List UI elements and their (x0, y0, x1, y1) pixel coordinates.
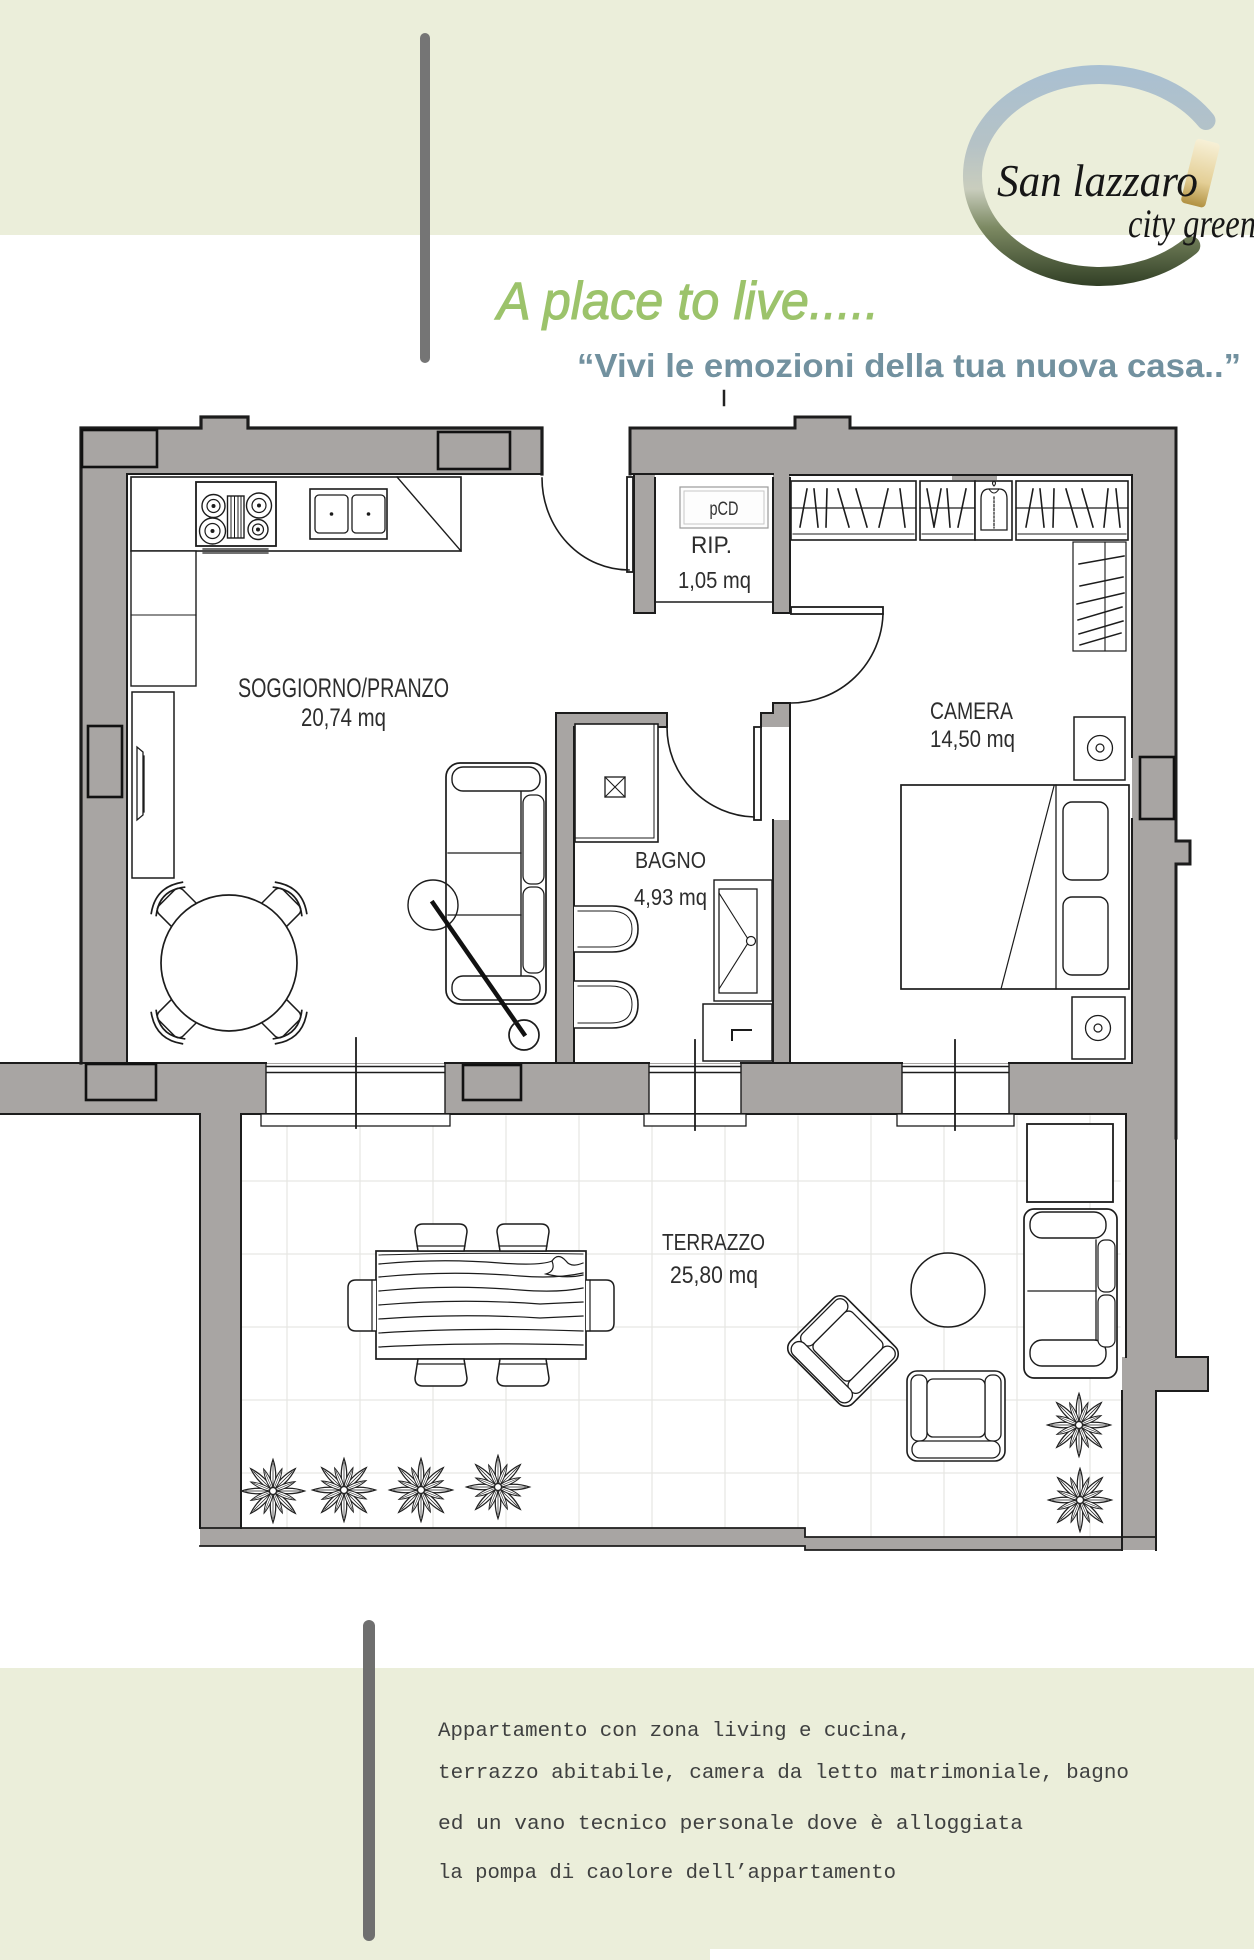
svg-text:SOGGIORNO/PRANZO: SOGGIORNO/PRANZO (238, 673, 449, 703)
svg-text:14,50 mq: 14,50 mq (930, 726, 1015, 753)
svg-text:pCD: pCD (710, 499, 739, 520)
svg-text:20,74 mq: 20,74 mq (301, 704, 386, 732)
svg-text:Appartamento con zona living e: Appartamento con zona living e cucina, (438, 1720, 911, 1743)
svg-text:ed un vano tecnico personale d: ed un vano tecnico personale dove è allo… (438, 1813, 1023, 1836)
svg-text:1,05 mq: 1,05 mq (678, 567, 751, 593)
svg-text:TERRAZZO: TERRAZZO (662, 1229, 765, 1255)
svg-text:A place to live.....: A place to live..... (494, 272, 879, 331)
svg-text:“Vivi le emozioni della tua nu: “Vivi le emozioni della tua nuova casa..… (577, 347, 1241, 384)
svg-text:4,93 mq: 4,93 mq (634, 884, 707, 910)
svg-text:San lazzaro: San lazzaro (997, 155, 1198, 206)
svg-text:terrazzo abitabile, camera da: terrazzo abitabile, camera da letto matr… (438, 1762, 1129, 1785)
svg-text:CAMERA: CAMERA (930, 698, 1013, 725)
svg-text:25,80 mq: 25,80 mq (670, 1262, 758, 1289)
svg-text:city green: city green (1128, 201, 1254, 246)
svg-text:RIP.: RIP. (691, 532, 732, 559)
svg-text:BAGNO: BAGNO (635, 847, 706, 873)
svg-text:la pompa di caolore dell’appar: la pompa di caolore dell’appartamento (438, 1862, 896, 1885)
